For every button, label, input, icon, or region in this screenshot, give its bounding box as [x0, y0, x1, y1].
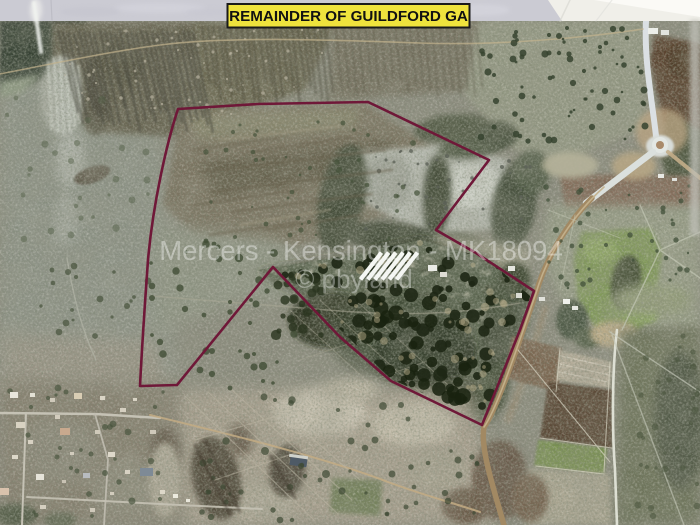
svg-text:REMAINDER OF GUILDFORD GA: REMAINDER OF GUILDFORD GA: [229, 8, 468, 25]
svg-text:Mercers - Kensington - MK18094: Mercers - Kensington - MK18094: [159, 235, 563, 266]
svg-text:© pbyland: © pbyland: [295, 264, 412, 294]
